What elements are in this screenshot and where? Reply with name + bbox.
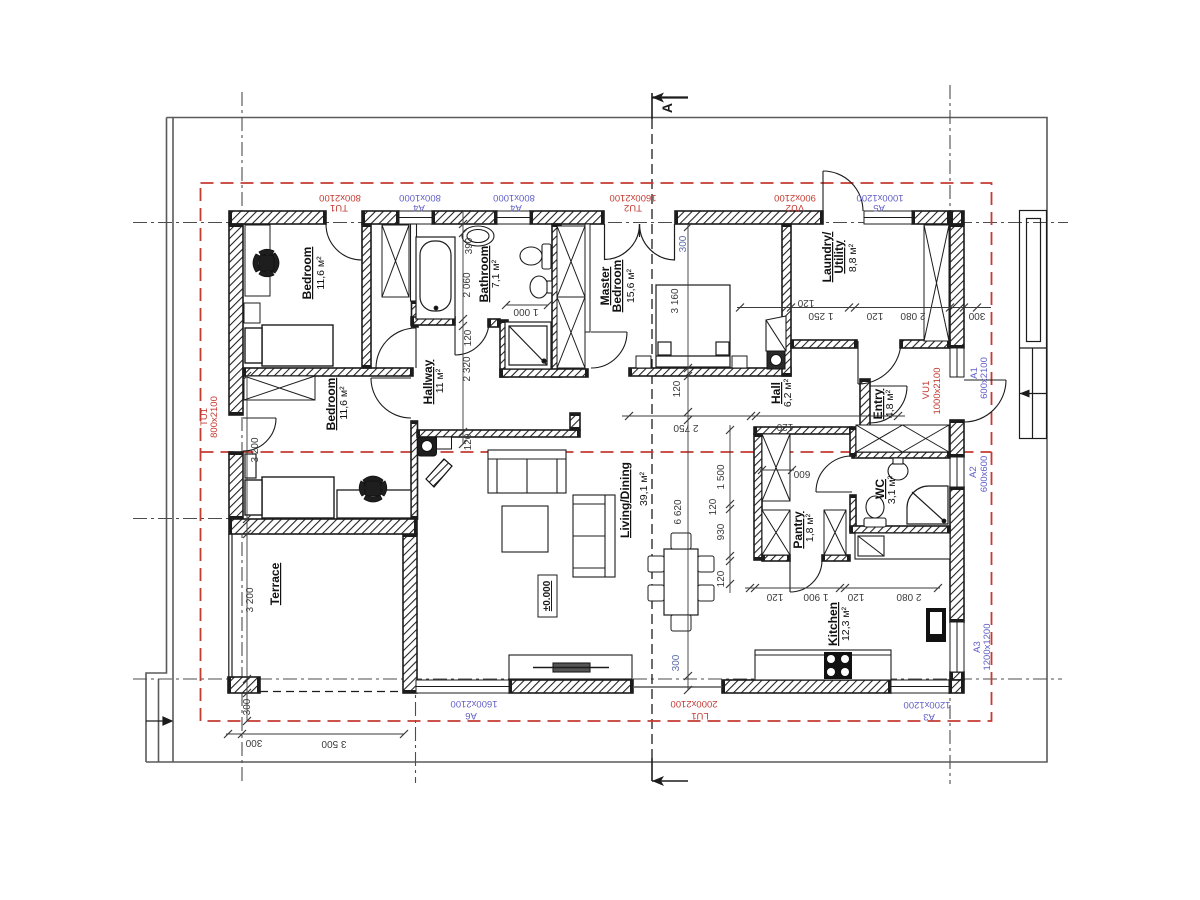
svg-text:2000x2100: 2000x2100 <box>670 698 717 709</box>
svg-text:Kitchen: Kitchen <box>826 602 840 646</box>
svg-text:120: 120 <box>776 421 793 432</box>
svg-text:6,2 м²: 6,2 м² <box>782 378 794 407</box>
svg-text:TU2: TU2 <box>624 202 642 213</box>
svg-text:2 750: 2 750 <box>673 422 698 433</box>
svg-text:1 900: 1 900 <box>803 591 828 602</box>
svg-text:2 080: 2 080 <box>900 310 925 321</box>
svg-text:930: 930 <box>716 523 727 540</box>
svg-text:300: 300 <box>671 654 682 671</box>
svg-text:3 500: 3 500 <box>321 738 346 749</box>
svg-text:2 320: 2 320 <box>462 356 473 381</box>
svg-text:2 060: 2 060 <box>462 272 473 297</box>
svg-text:1200x1200: 1200x1200 <box>903 699 950 710</box>
svg-text:1 250: 1 250 <box>808 310 833 321</box>
svg-text:800x2100: 800x2100 <box>209 396 220 438</box>
svg-text:120: 120 <box>847 591 864 602</box>
svg-text:±0.000: ±0.000 <box>542 580 553 611</box>
svg-text:Hall: Hall <box>769 382 783 404</box>
svg-text:1000x2100: 1000x2100 <box>932 367 943 414</box>
svg-text:1600x2100: 1600x2100 <box>450 698 497 709</box>
svg-text:3 200: 3 200 <box>250 437 261 462</box>
svg-text:A2: A2 <box>968 466 979 478</box>
svg-text:Bathroom: Bathroom <box>477 246 491 303</box>
svg-text:800x1000: 800x1000 <box>399 192 441 203</box>
svg-text:300: 300 <box>678 235 689 252</box>
svg-text:8,8 м²: 8,8 м² <box>847 243 859 272</box>
svg-text:WC: WC <box>873 479 887 499</box>
svg-text:120: 120 <box>766 591 783 602</box>
svg-text:390: 390 <box>464 237 475 254</box>
svg-text:Hallway: Hallway <box>421 359 435 404</box>
svg-text:Pantry: Pantry <box>791 511 805 549</box>
svg-text:800x1000: 800x1000 <box>493 192 535 203</box>
svg-text:1,8 м²: 1,8 м² <box>804 513 816 542</box>
svg-text:3 160: 3 160 <box>670 288 681 313</box>
svg-text:11 м²: 11 м² <box>434 368 446 393</box>
svg-text:120: 120 <box>463 329 474 346</box>
svg-text:800x2100: 800x2100 <box>319 192 361 203</box>
svg-text:120: 120 <box>672 380 683 397</box>
svg-text:1 000: 1 000 <box>513 306 538 317</box>
svg-text:A5: A5 <box>873 202 885 213</box>
svg-text:TU1: TU1 <box>330 202 348 213</box>
svg-text:Utility: Utility <box>832 240 846 274</box>
svg-text:15,6 м²: 15,6 м² <box>625 268 637 303</box>
svg-text:300: 300 <box>242 698 253 715</box>
svg-text:6 620: 6 620 <box>673 499 684 524</box>
svg-text:4,8 м²: 4,8 м² <box>884 389 896 418</box>
svg-text:3,1 м²: 3,1 м² <box>886 475 898 504</box>
svg-text:LU1: LU1 <box>691 710 708 721</box>
svg-text:Bedroom: Bedroom <box>610 260 624 313</box>
svg-text:A6: A6 <box>465 710 477 721</box>
svg-text:12,3 м²: 12,3 м² <box>840 606 852 641</box>
svg-text:7,1 м²: 7,1 м² <box>490 259 502 288</box>
svg-text:1 500: 1 500 <box>716 464 727 489</box>
svg-text:600: 600 <box>793 468 810 479</box>
svg-text:900x2100: 900x2100 <box>774 192 816 203</box>
svg-text:Living/Dining: Living/Dining <box>618 462 632 538</box>
svg-text:300: 300 <box>245 737 262 748</box>
svg-text:1600x2100: 1600x2100 <box>609 192 656 203</box>
svg-text:A4: A4 <box>413 202 425 213</box>
svg-text:120: 120 <box>708 498 719 515</box>
svg-text:1000x1200: 1000x1200 <box>856 192 903 203</box>
svg-text:39,1 м²: 39,1 м² <box>638 471 650 506</box>
svg-text:A: A <box>659 103 675 113</box>
svg-text:120: 120 <box>463 433 474 450</box>
svg-text:600x2100: 600x2100 <box>979 357 990 399</box>
svg-text:3 200: 3 200 <box>245 587 256 612</box>
svg-text:Bedroom: Bedroom <box>300 247 314 300</box>
svg-text:A3: A3 <box>923 711 935 722</box>
svg-text:VU1: VU1 <box>921 381 932 399</box>
svg-text:2 080: 2 080 <box>896 591 921 602</box>
svg-text:300: 300 <box>968 310 985 321</box>
svg-text:120: 120 <box>797 297 814 308</box>
svg-text:Terrace: Terrace <box>268 562 282 605</box>
svg-text:Bedroom: Bedroom <box>324 378 338 431</box>
svg-text:600x600: 600x600 <box>979 456 990 492</box>
svg-text:VU2: VU2 <box>786 202 804 213</box>
svg-text:120: 120 <box>866 310 883 321</box>
svg-text:11,6 м²: 11,6 м² <box>338 386 350 420</box>
svg-text:Entry: Entry <box>871 388 885 419</box>
svg-text:120: 120 <box>716 570 727 587</box>
svg-text:1200x1200: 1200x1200 <box>982 623 993 670</box>
svg-text:11,6 м²: 11,6 м² <box>315 256 327 290</box>
svg-text:A4: A4 <box>510 202 522 213</box>
